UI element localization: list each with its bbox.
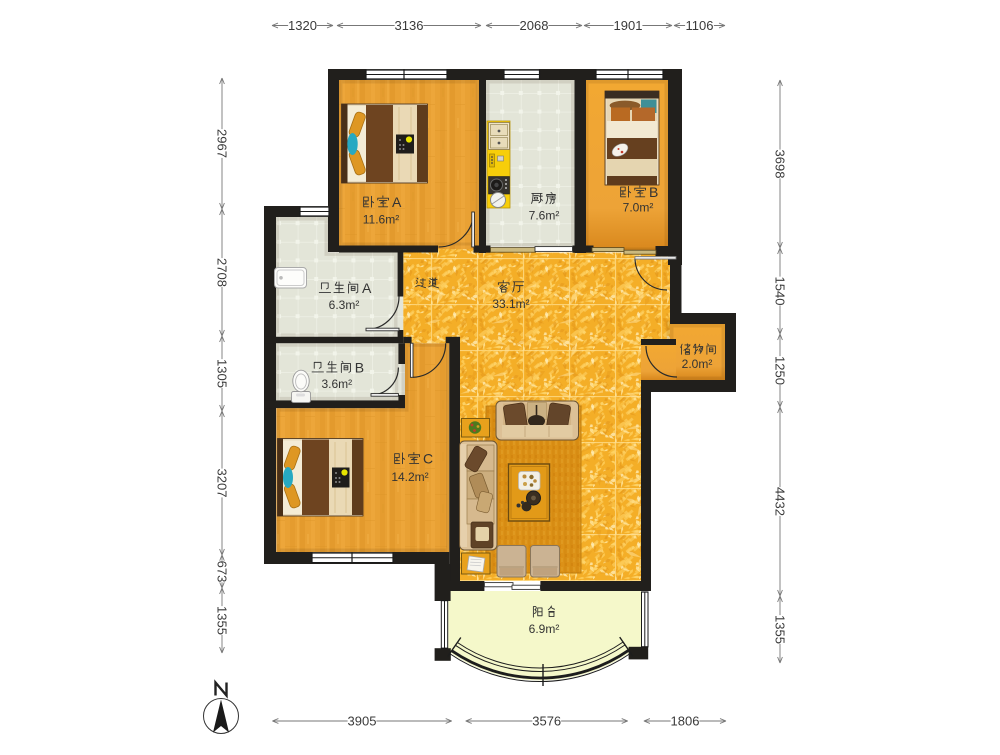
svg-text:A: A — [362, 280, 372, 296]
svg-text:3576: 3576 — [532, 714, 561, 729]
svg-text:7.6m²: 7.6m² — [529, 209, 560, 223]
svg-text:11.6m²: 11.6m² — [363, 213, 399, 227]
svg-text:1320: 1320 — [288, 18, 317, 33]
svg-text:2967: 2967 — [215, 129, 230, 158]
svg-text:1250: 1250 — [773, 356, 788, 385]
svg-text:6.3m²: 6.3m² — [329, 298, 360, 312]
svg-text:14.2m²: 14.2m² — [391, 470, 428, 484]
svg-text:7.0m²: 7.0m² — [623, 201, 654, 215]
svg-text:2708: 2708 — [215, 258, 230, 287]
svg-text:B: B — [649, 184, 658, 200]
svg-text:3207: 3207 — [215, 469, 230, 498]
svg-text:1806: 1806 — [671, 714, 700, 729]
svg-text:6.9m²: 6.9m² — [529, 622, 560, 636]
svg-text:1540: 1540 — [773, 277, 788, 306]
svg-text:1355: 1355 — [773, 615, 788, 644]
svg-text:2.0m²: 2.0m² — [682, 357, 713, 371]
svg-text:C: C — [423, 450, 433, 466]
svg-text:3698: 3698 — [773, 150, 788, 179]
svg-text:1305: 1305 — [215, 359, 230, 388]
svg-text:33.1m²: 33.1m² — [492, 297, 529, 311]
svg-text:A: A — [392, 194, 402, 210]
svg-text:1901: 1901 — [614, 18, 643, 33]
svg-text:4432: 4432 — [773, 487, 788, 516]
svg-text:1106: 1106 — [686, 18, 714, 33]
svg-text:3.6m²: 3.6m² — [321, 377, 352, 391]
svg-text:2068: 2068 — [520, 18, 549, 33]
svg-text:B: B — [355, 359, 364, 375]
svg-text:1355: 1355 — [215, 606, 230, 635]
svg-text:3136: 3136 — [395, 18, 424, 33]
svg-text:3905: 3905 — [348, 714, 377, 729]
svg-text:673: 673 — [215, 561, 230, 583]
